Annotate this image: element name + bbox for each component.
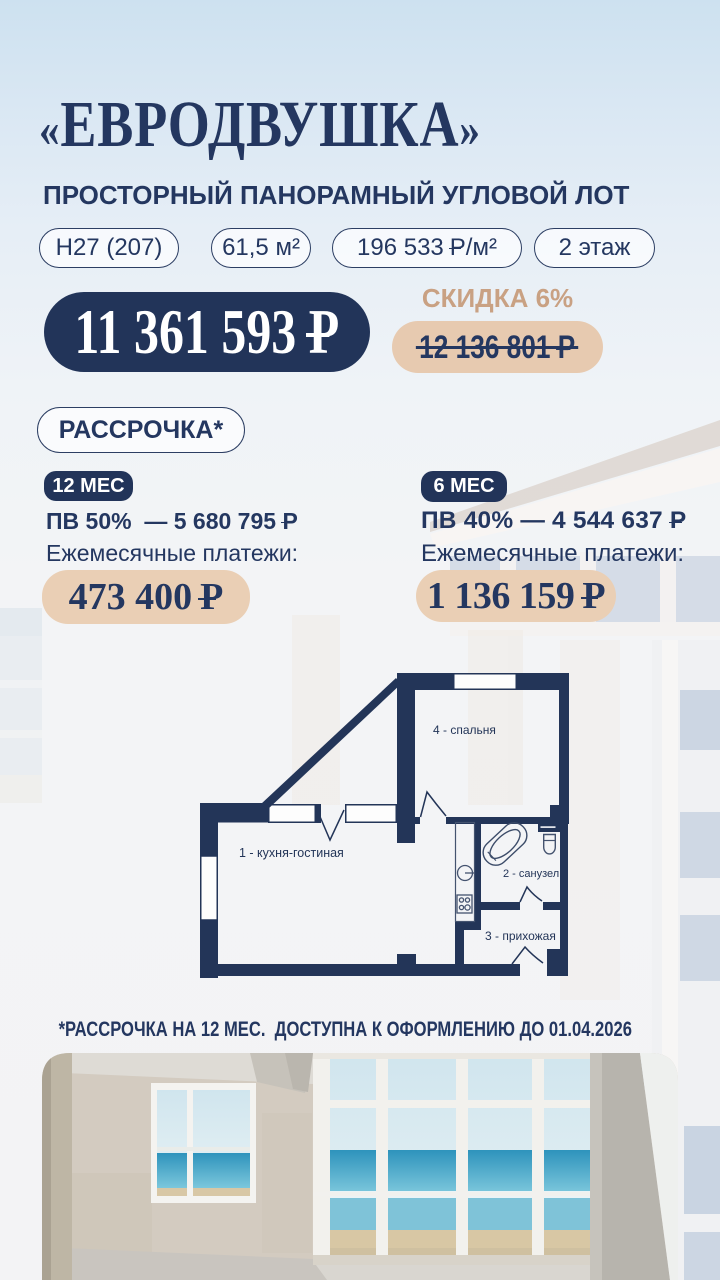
svg-text:3 - прихожая: 3 - прихожая bbox=[485, 929, 556, 943]
svg-text:1 - кухня-гостиная: 1 - кухня-гостиная bbox=[239, 846, 344, 860]
svg-text:4 - спальня: 4 - спальня bbox=[433, 723, 496, 737]
svg-text:2 - санузел: 2 - санузел bbox=[503, 868, 559, 880]
